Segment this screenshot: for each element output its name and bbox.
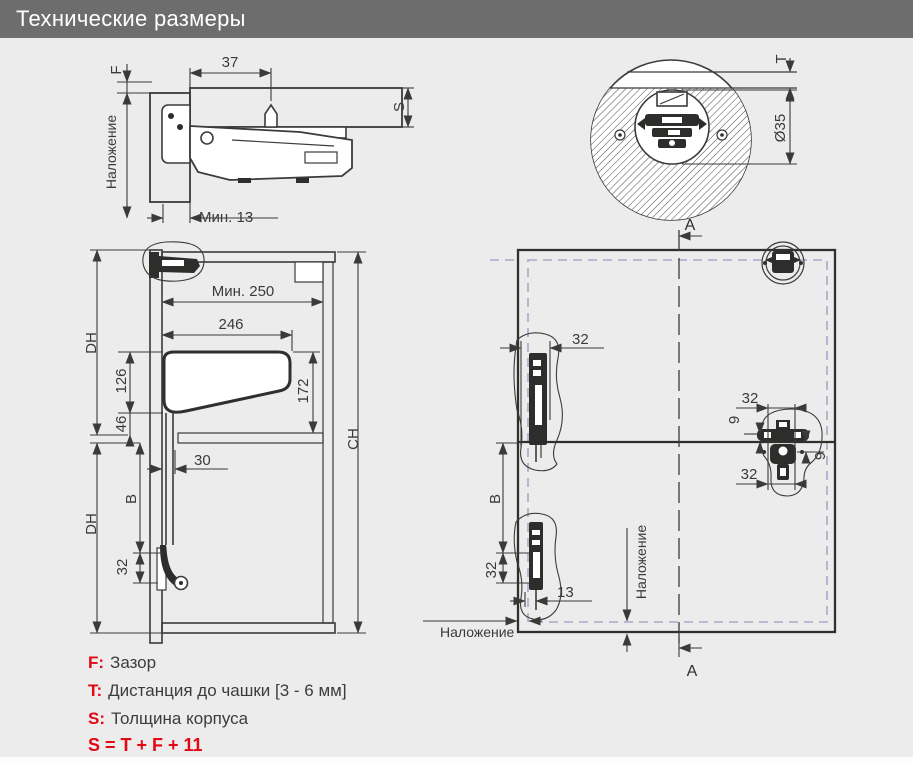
cup-view-drawing: T Ø35 [586,54,797,228]
legend-text-s: Толщина корпуса [111,709,248,728]
hinge-cup-front [762,242,804,284]
dim-overlay-side: Наложение [103,115,119,190]
top-hinge-detail [143,242,204,281]
dim-13: 13 [557,584,574,601]
dim-d35: Ø35 [772,114,789,142]
dim-32-mid-bottom: 32 [741,466,758,483]
legend-text-t: Дистанция до чашки [3 - 6 мм] [108,681,346,700]
bottom-panel [162,623,335,633]
dim-ch: CH [345,428,362,450]
dim-32-side: 32 [114,559,131,576]
dim-37: 37 [222,54,239,71]
dim-dh-bottom: DH [83,513,100,535]
front-view-drawing: A A 32 [423,217,835,680]
dim-f: F [108,65,125,74]
back-rail [295,262,323,282]
lift-unit-upper-detail: 32 [500,331,604,471]
section-a-bottom: A [687,663,698,680]
legend-key-f: F: [88,653,104,672]
dim-b-front: B [487,494,504,504]
dim-172: 172 [295,378,312,403]
technical-drawing: F Наложение 37 S Мин. 13 [0,0,913,764]
cabinet-side-view: DH DH CH Мин. 250 246 172 126 46 30 [83,242,366,643]
dim-min13: Мин. 13 [199,209,253,226]
cabinet-top-panel-section [190,88,402,127]
side-view-drawing: F Наложение 37 S Мин. 13 [103,54,414,226]
dim-30: 30 [194,452,211,469]
dim-min250: Мин. 250 [212,283,275,300]
lift-unit-lower-detail: B 32 13 [483,443,592,620]
legend-text-f: Зазор [110,653,156,672]
middle-shelf [178,433,323,443]
dim-overlay-bottom: Наложение [440,624,515,640]
dim-46: 46 [113,416,130,433]
section-a-top: A [685,217,696,234]
legend-key-t: T: [88,681,102,700]
dim-9-right: 9 [812,452,829,460]
dim-126: 126 [113,368,130,393]
dim-dh-top: DH [83,332,100,354]
dim-32-lower-left: 32 [483,562,500,579]
legend-row-s: S:Толщина корпуса [88,709,248,729]
mounting-screw [265,105,277,127]
dim-246: 246 [218,316,243,333]
legend-formula: S = T + F + 11 [88,735,203,756]
legend-key-s: S: [88,709,105,728]
dim-overlay-mid: Наложение [633,525,649,600]
legend-row-f: F:Зазор [88,653,156,673]
legend-row-t: T:Дистанция до чашки [3 - 6 мм] [88,681,347,701]
dim-32-mid-top: 32 [742,390,759,407]
back-panel [323,262,333,623]
dim-t: T [773,54,790,63]
dim-32-upper-left: 32 [572,331,589,348]
dim-b-side: B [123,494,140,504]
dim-9-left: 9 [726,416,743,424]
dim-s: S [391,102,408,112]
lift-mechanism-housing [164,352,290,412]
bottom-margin [0,757,913,764]
